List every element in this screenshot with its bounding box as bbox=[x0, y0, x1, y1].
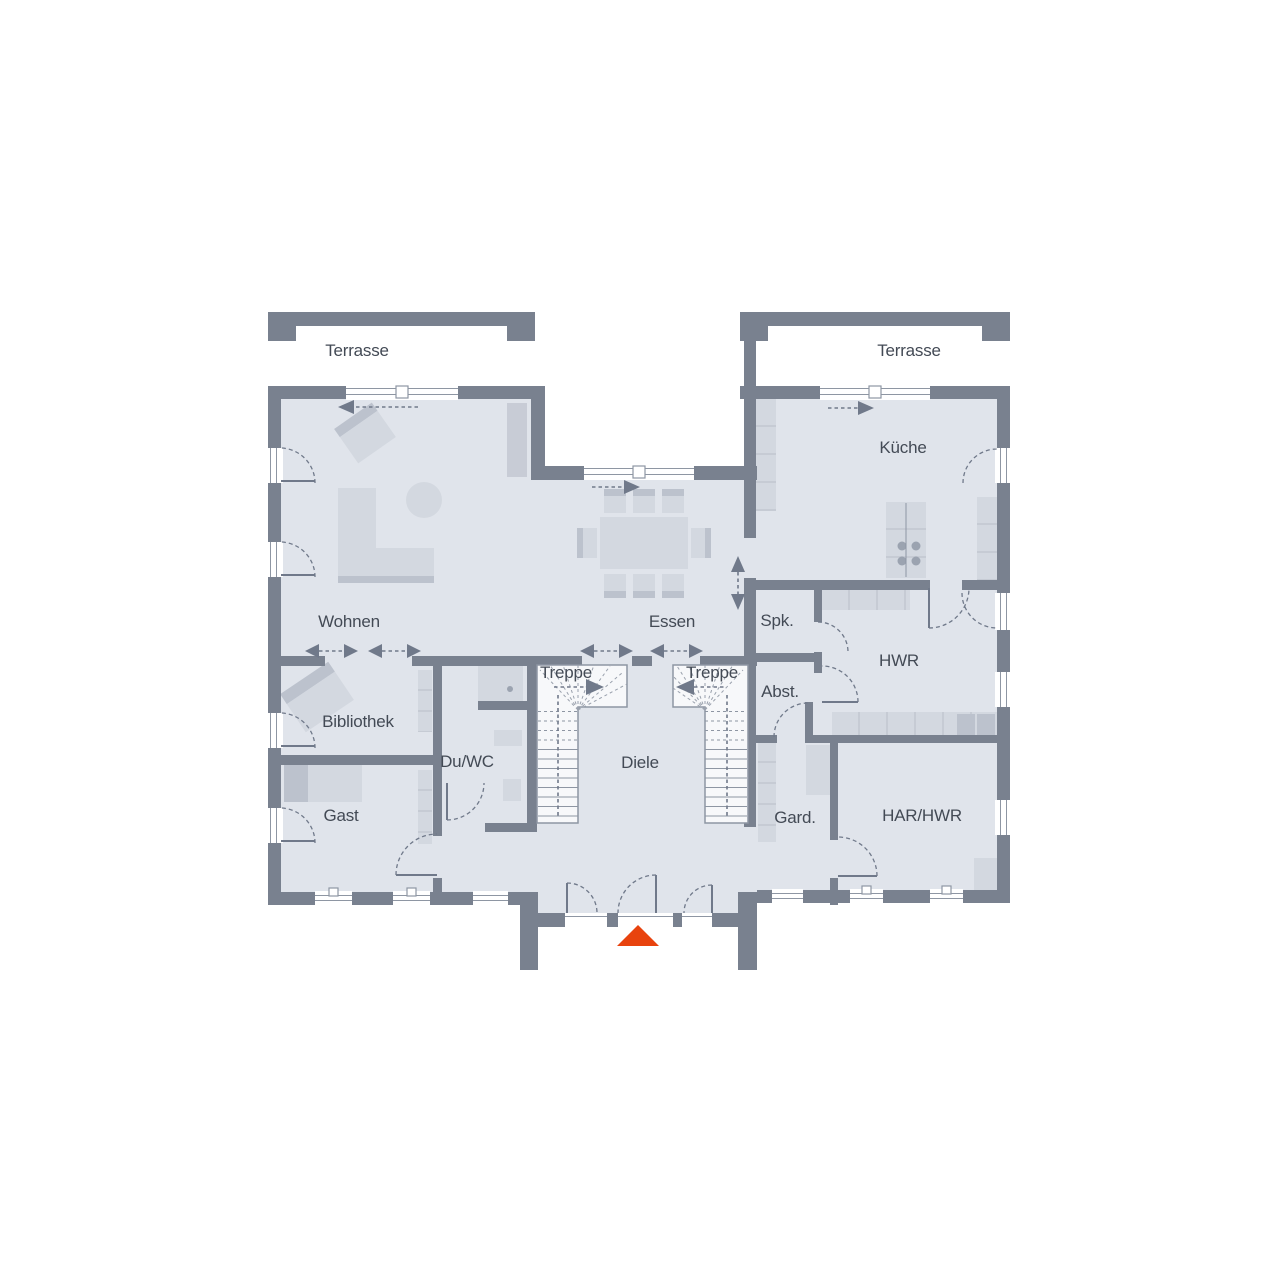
room-label-treppe-left: Treppe bbox=[540, 663, 592, 683]
room-label-treppe-right: Treppe bbox=[686, 663, 738, 683]
room-label-spk: Spk. bbox=[760, 611, 793, 631]
room-label-gast: Gast bbox=[323, 806, 358, 826]
staircase-right bbox=[673, 665, 748, 823]
floor-plan: Terrasse Terrasse Wohnen Essen Küche Spk… bbox=[0, 0, 1280, 1280]
shower-drain bbox=[507, 686, 513, 692]
room-label-terrasse-left: Terrasse bbox=[325, 341, 389, 361]
room-label-hwr: HWR bbox=[879, 651, 919, 671]
cooktop-burners bbox=[898, 503, 921, 577]
room-label-terrasse-right: Terrasse bbox=[877, 341, 941, 361]
entrance-marker bbox=[617, 925, 659, 946]
room-label-diele: Diele bbox=[621, 753, 659, 773]
room-label-wohnen: Wohnen bbox=[318, 612, 380, 632]
staircase-left bbox=[537, 665, 627, 823]
room-label-abst: Abst. bbox=[761, 682, 799, 702]
room-label-har-hwr: HAR/HWR bbox=[882, 806, 962, 826]
annotations-layer bbox=[0, 0, 1280, 1280]
room-label-gard: Gard. bbox=[774, 808, 816, 828]
room-label-essen: Essen bbox=[649, 612, 695, 632]
door-swings bbox=[281, 448, 997, 913]
room-label-duwc: Du/WC bbox=[440, 752, 494, 772]
room-label-bibliothek: Bibliothek bbox=[322, 712, 394, 732]
room-label-kueche: Küche bbox=[879, 438, 926, 458]
